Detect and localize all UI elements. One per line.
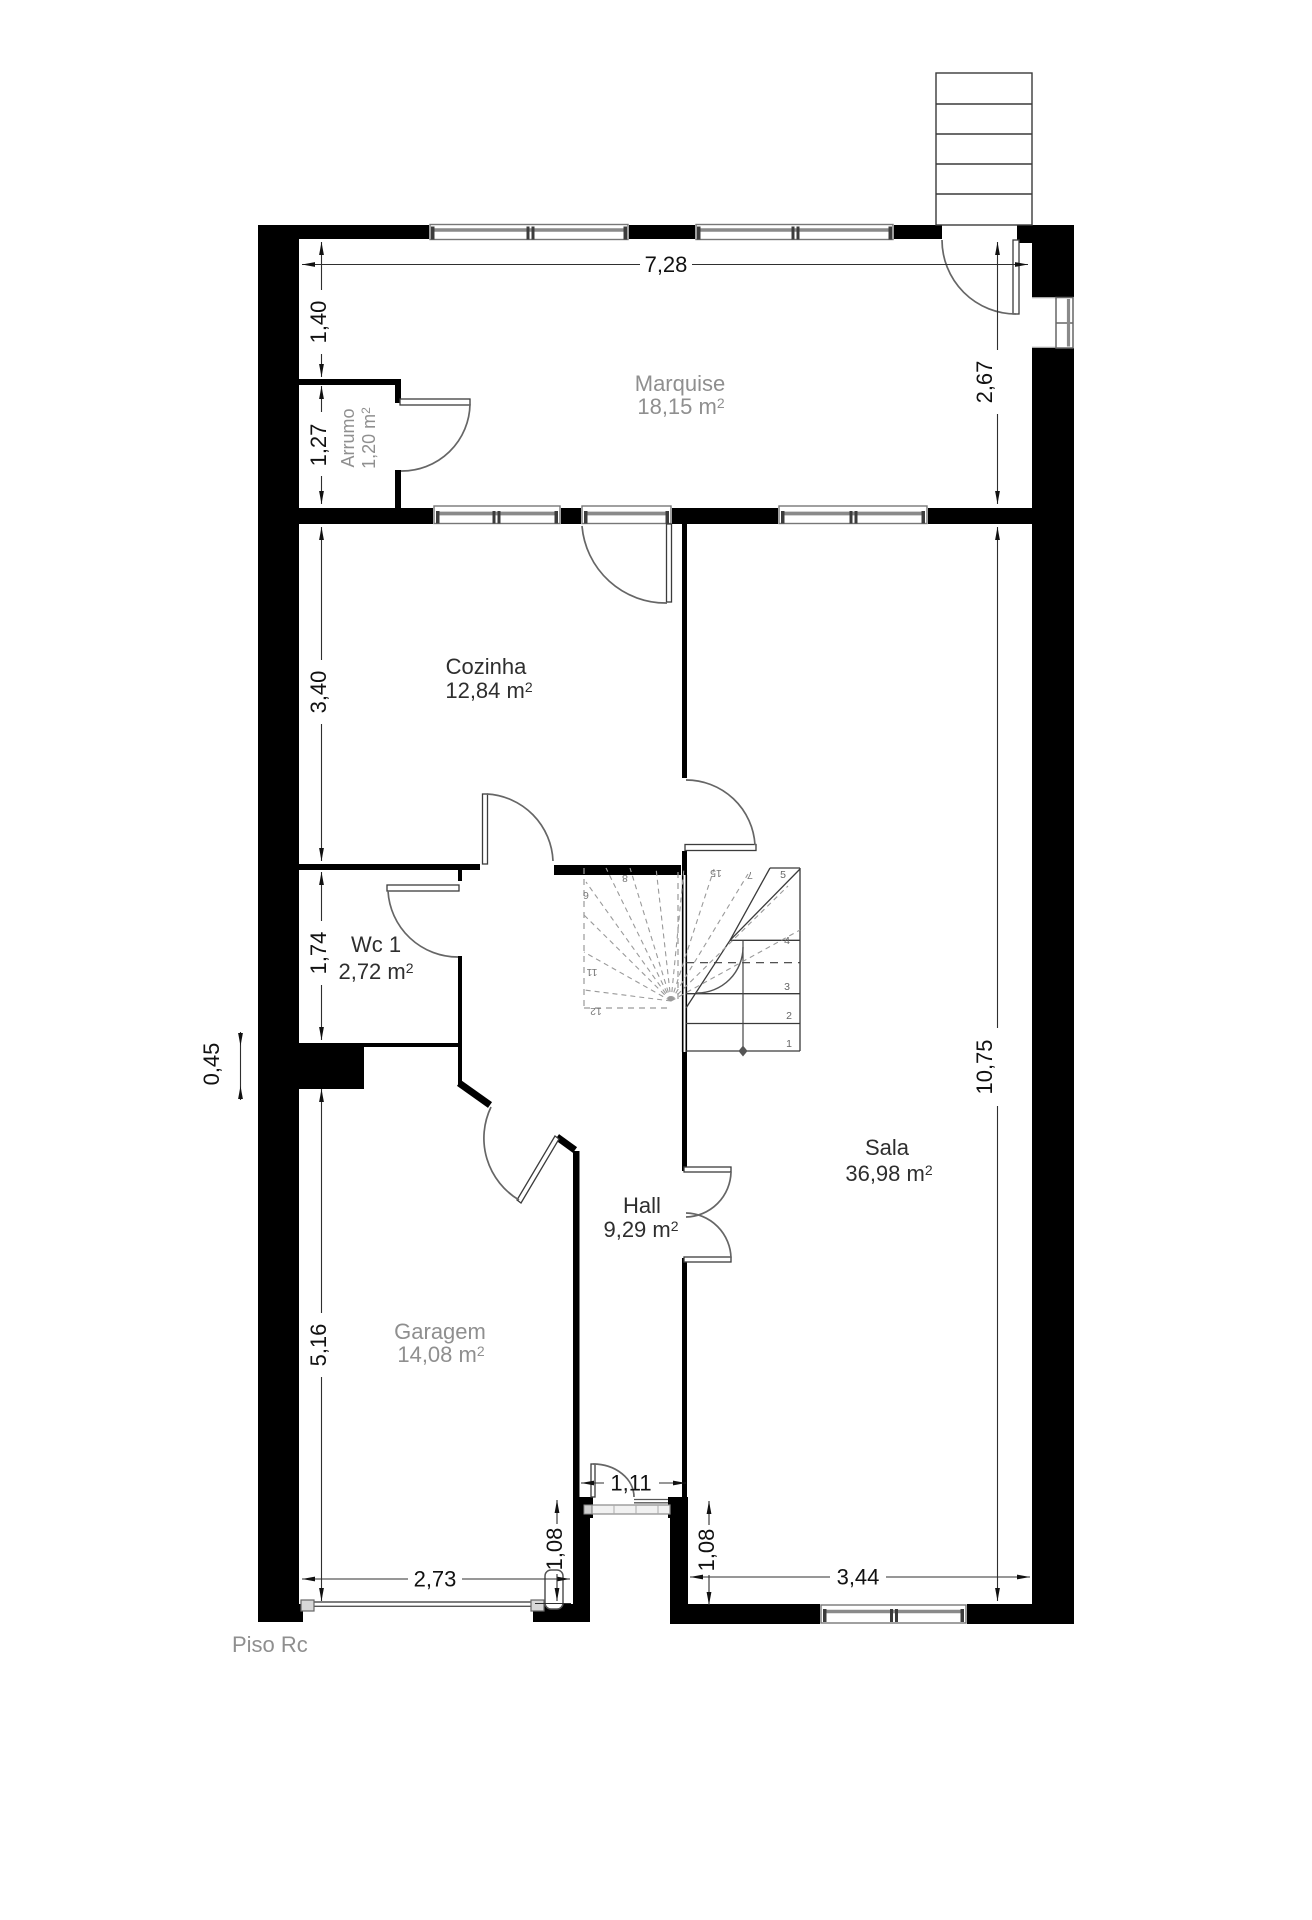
svg-text:Marquise: Marquise <box>635 371 725 396</box>
svg-text:6: 6 <box>583 889 589 901</box>
svg-text:4: 4 <box>784 935 790 947</box>
svg-text:2,67: 2,67 <box>972 361 997 404</box>
svg-text:2: 2 <box>786 1010 792 1022</box>
svg-text:0,45: 0,45 <box>199 1043 224 1086</box>
svg-text:18,15 m2: 18,15 m2 <box>637 394 725 419</box>
svg-text:3: 3 <box>784 981 790 993</box>
svg-text:1,27: 1,27 <box>306 424 331 467</box>
svg-text:1,20 m2: 1,20 m2 <box>359 407 379 469</box>
svg-text:3,44: 3,44 <box>837 1565 880 1590</box>
svg-text:9,29 m2: 9,29 m2 <box>603 1217 678 1242</box>
svg-text:1,40: 1,40 <box>306 301 331 344</box>
svg-text:7: 7 <box>747 869 753 881</box>
svg-text:1: 1 <box>786 1038 792 1050</box>
svg-text:5: 5 <box>780 869 786 881</box>
svg-text:Wc 1: Wc 1 <box>351 932 401 957</box>
svg-text:1,08: 1,08 <box>542 1528 567 1571</box>
svg-text:Arrumo: Arrumo <box>338 408 358 467</box>
svg-text:12,84 m2: 12,84 m2 <box>445 678 533 703</box>
svg-text:1,11: 1,11 <box>610 1471 651 1496</box>
svg-text:36,98 m2: 36,98 m2 <box>845 1161 933 1186</box>
svg-text:14,08 m2: 14,08 m2 <box>397 1342 485 1367</box>
svg-text:7,28: 7,28 <box>645 252 688 277</box>
svg-text:8: 8 <box>622 872 628 884</box>
svg-text:Cozinha: Cozinha <box>446 654 527 679</box>
svg-text:Piso Rc: Piso Rc <box>232 1632 308 1657</box>
svg-text:12: 12 <box>590 1005 602 1017</box>
svg-text:11: 11 <box>586 966 597 978</box>
svg-text:10,75: 10,75 <box>972 1039 997 1094</box>
svg-text:Sala: Sala <box>865 1135 910 1160</box>
svg-text:1,08: 1,08 <box>694 1529 719 1572</box>
svg-text:2,72 m2: 2,72 m2 <box>338 959 413 984</box>
svg-text:Garagem: Garagem <box>394 1319 486 1344</box>
svg-text:15: 15 <box>710 867 722 879</box>
svg-text:5,16: 5,16 <box>306 1324 331 1367</box>
svg-text:1,74: 1,74 <box>306 932 331 975</box>
svg-text:2,73: 2,73 <box>414 1567 457 1592</box>
svg-text:Hall: Hall <box>623 1193 661 1218</box>
svg-text:3,40: 3,40 <box>306 671 331 714</box>
